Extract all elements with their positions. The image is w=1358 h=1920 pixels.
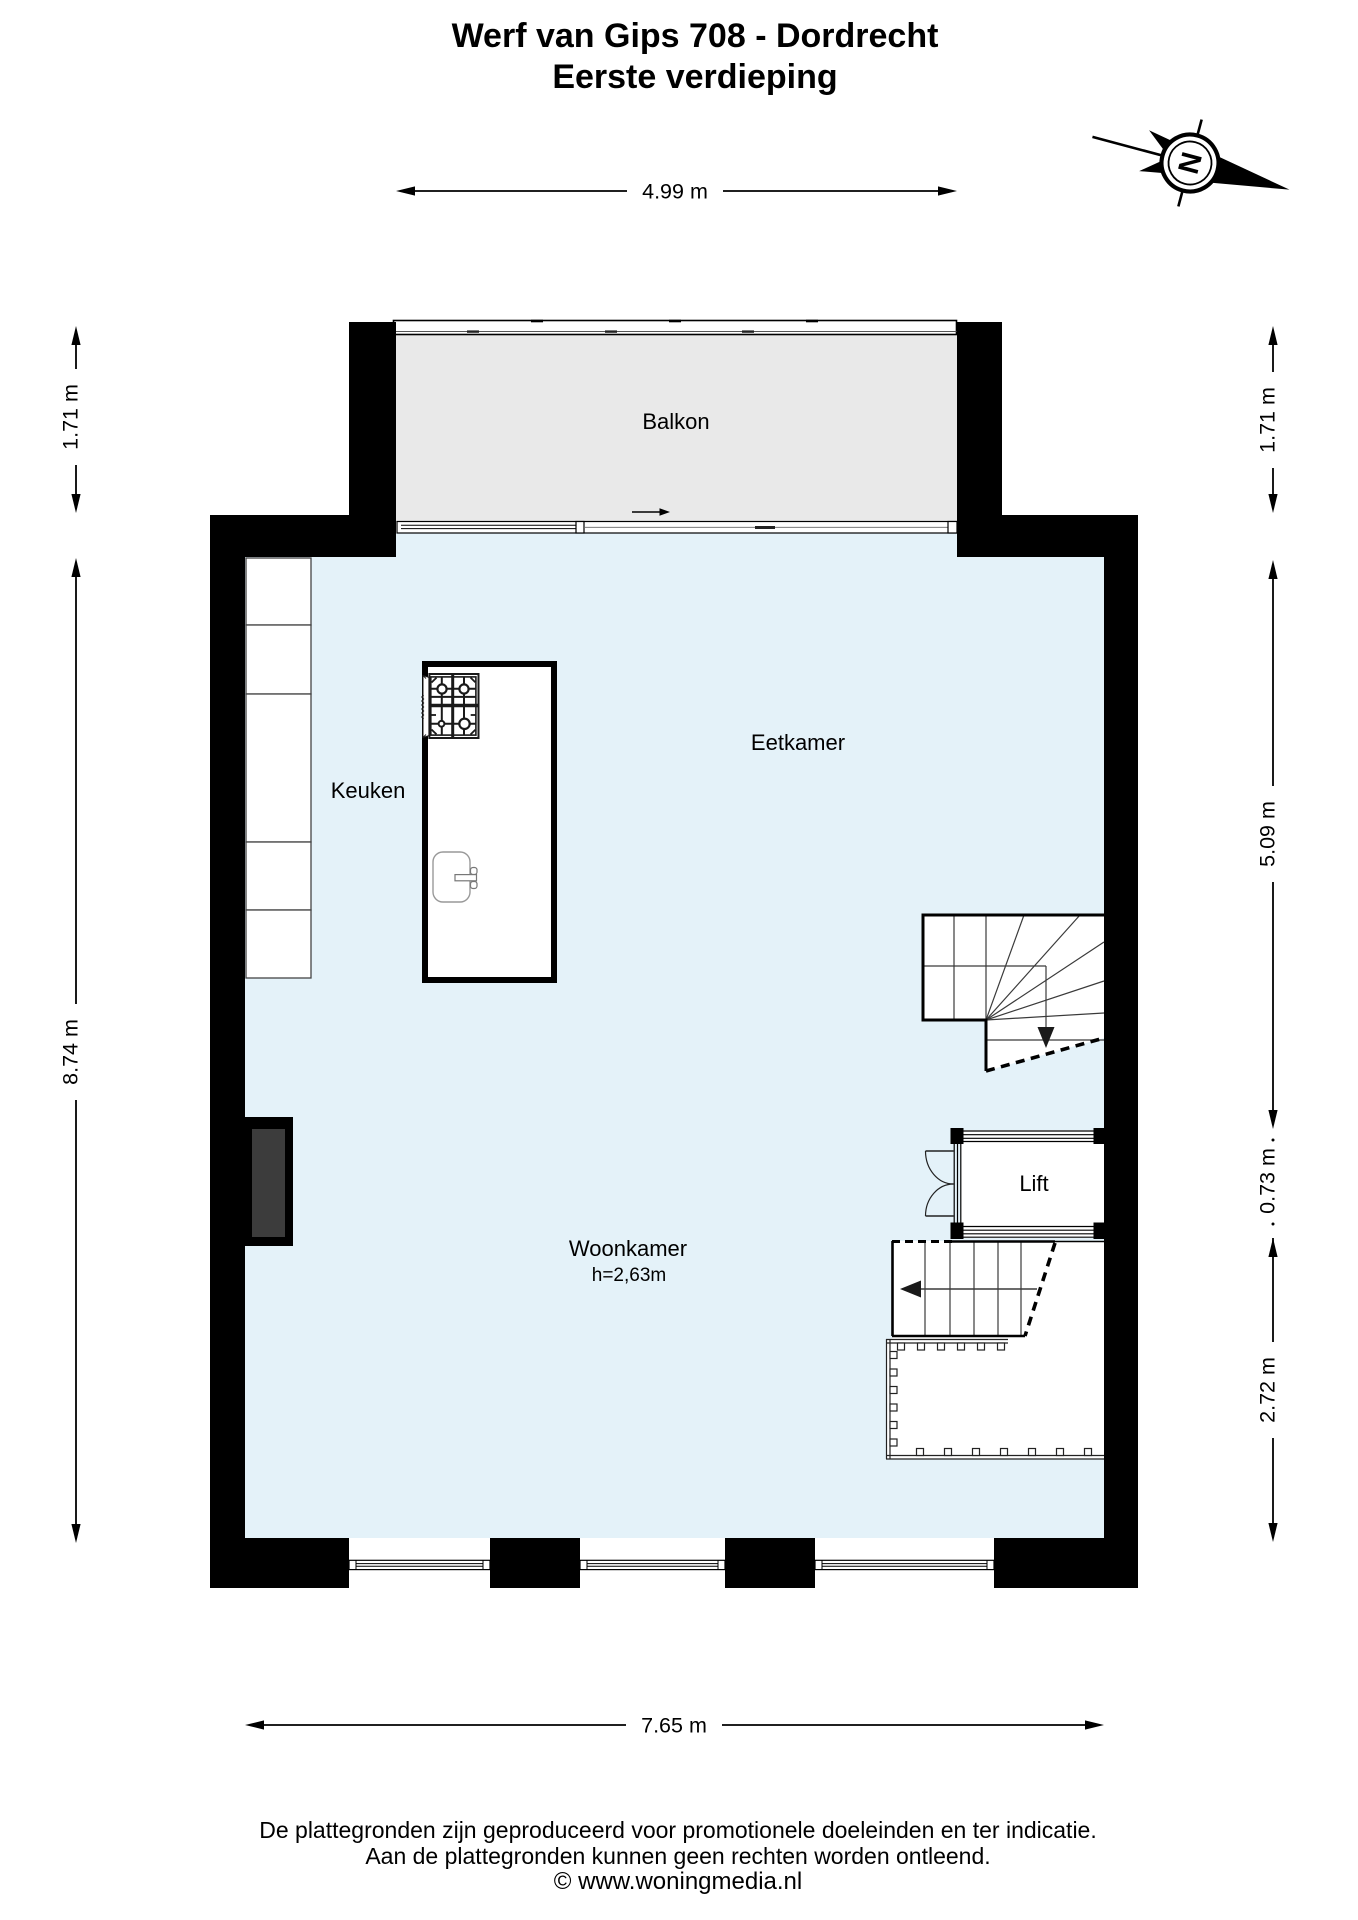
- svg-text:Eerste verdieping: Eerste verdieping: [552, 58, 837, 96]
- svg-text:Balkon: Balkon: [642, 409, 709, 434]
- svg-text:5.09 m: 5.09 m: [1256, 801, 1280, 867]
- svg-text:Lift: Lift: [1019, 1171, 1048, 1196]
- svg-text:© www.woningmedia.nl: © www.woningmedia.nl: [554, 1868, 802, 1895]
- svg-text:1.71 m: 1.71 m: [1256, 387, 1280, 453]
- svg-text:4.99 m: 4.99 m: [642, 180, 708, 204]
- svg-text:2.72 m: 2.72 m: [1256, 1357, 1280, 1423]
- svg-text:Keuken: Keuken: [331, 778, 406, 803]
- svg-text:8.74 m: 8.74 m: [59, 1019, 83, 1085]
- svg-text:Werf van Gips 708 - Dordrecht: Werf van Gips 708 - Dordrecht: [452, 17, 939, 55]
- svg-text:Aan de plattegronden kunnen ge: Aan de plattegronden kunnen geen rechten…: [365, 1843, 990, 1869]
- svg-text:Eetkamer: Eetkamer: [751, 730, 845, 755]
- svg-text:De plattegronden zijn geproduc: De plattegronden zijn geproduceerd voor …: [259, 1817, 1097, 1843]
- svg-text:7.65 m: 7.65 m: [641, 1714, 707, 1738]
- svg-text:h=2,63m: h=2,63m: [592, 1265, 666, 1286]
- svg-text:0.73 m: 0.73 m: [1256, 1148, 1280, 1214]
- svg-text:1.71 m: 1.71 m: [59, 384, 83, 450]
- svg-text:Woonkamer: Woonkamer: [569, 1236, 687, 1261]
